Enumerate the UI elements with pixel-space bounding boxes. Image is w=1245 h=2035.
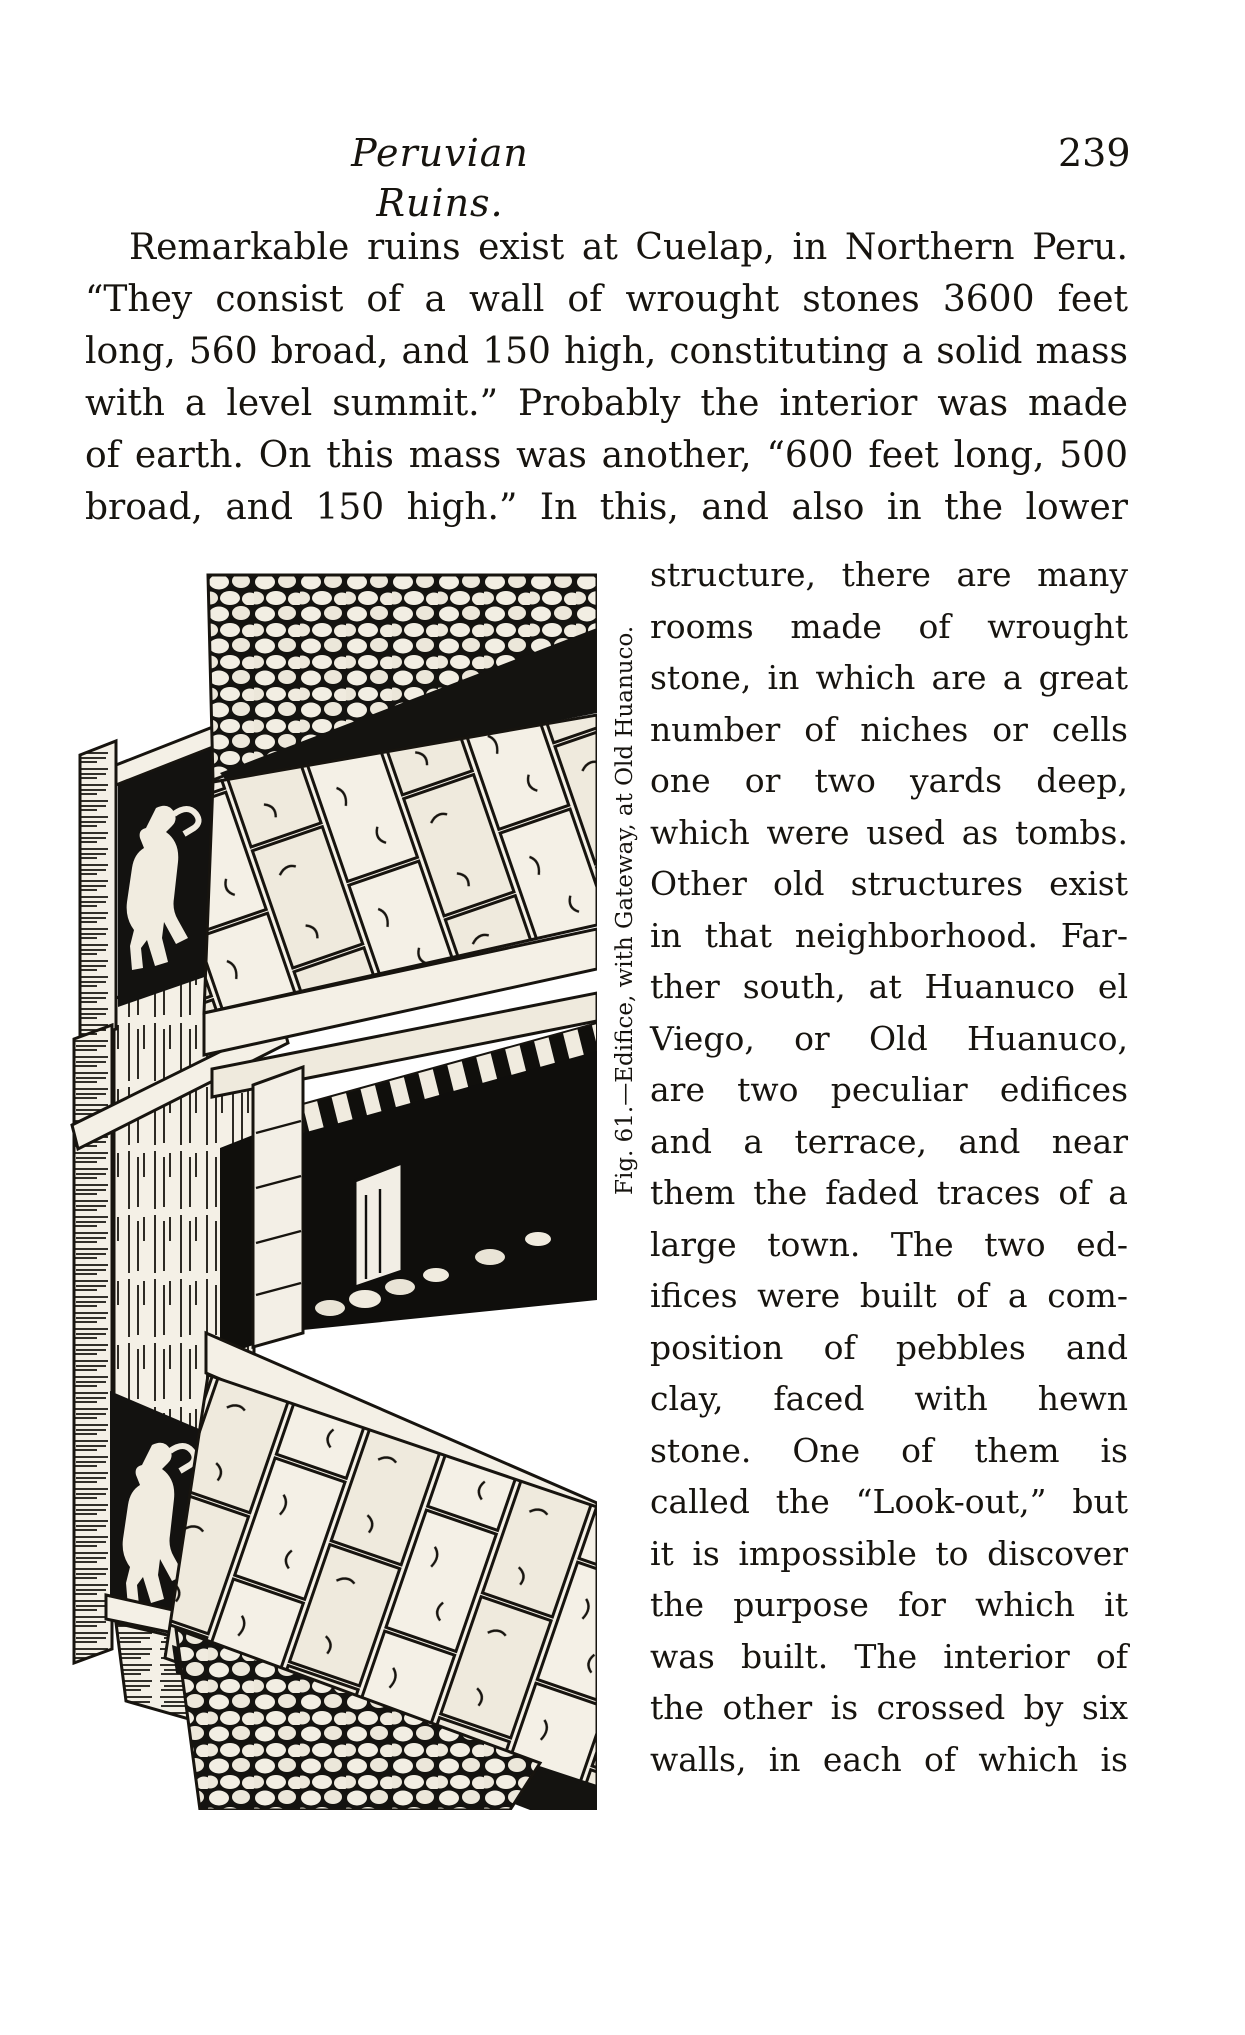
- text-line: clay, faced with hewn: [650, 1373, 1128, 1425]
- text-line: one or two yards deep,: [650, 755, 1128, 807]
- text-line: long, 560 broad, and 150 high, constitut…: [85, 326, 1128, 378]
- book-page: Peruvian Ruins. 239 Remarkable ruins exi…: [0, 0, 1245, 2035]
- text-line: walls, in each of which is: [650, 1734, 1128, 1786]
- text-line: it is impossible to discover: [650, 1528, 1128, 1580]
- text-line: Remarkable ruins exist at Cuelap, in Nor…: [85, 222, 1128, 274]
- text-line: broad, and 150 high.” In this, and also …: [85, 482, 1128, 534]
- text-line: Viego, or Old Huanuco,: [650, 1013, 1128, 1065]
- text-line: the purpose for which it: [650, 1579, 1128, 1631]
- figure-caption: Fig. 61.—Edifice, with Gateway, at Old H…: [608, 635, 642, 1195]
- text-line: was built. The interior of: [650, 1631, 1128, 1683]
- text-line: ifices were built of a com-: [650, 1270, 1128, 1322]
- page-number: 239: [1058, 128, 1131, 178]
- running-title: Peruvian Ruins.: [300, 128, 580, 228]
- figure-engraving: [70, 573, 597, 1810]
- text-line: of earth. On this mass was another, “600…: [85, 430, 1128, 482]
- text-line: ther south, at Huanuco el: [650, 961, 1128, 1013]
- text-line: the other is crossed by six: [650, 1682, 1128, 1734]
- text-line: in that neighborhood. Far-: [650, 910, 1128, 962]
- text-line: large town. The two ed-: [650, 1219, 1128, 1271]
- text-line: position of pebbles and: [650, 1322, 1128, 1374]
- text-line: number of niches or cells: [650, 704, 1128, 756]
- text-line: “They consist of a wall of wrought stone…: [85, 274, 1128, 326]
- text-line: stone. One of them is: [650, 1425, 1128, 1477]
- text-line: with a level summit.” Probably the inter…: [85, 378, 1128, 430]
- text-line: rooms made of wrought: [650, 601, 1128, 653]
- text-line: Other old structures exist: [650, 858, 1128, 910]
- text-line: stone, in which are a great: [650, 652, 1128, 704]
- text-line: them the faded traces of a: [650, 1167, 1128, 1219]
- text-line: and a terrace, and near: [650, 1116, 1128, 1168]
- text-line: structure, there are many: [650, 549, 1128, 601]
- text-line: which were used as tombs.: [650, 807, 1128, 859]
- opening-paragraph: Remarkable ruins exist at Cuelap, in Nor…: [85, 222, 1128, 534]
- text-line: are two peculiar edifices: [650, 1064, 1128, 1116]
- wrapped-column: structure, there are many rooms made of …: [650, 549, 1128, 1785]
- text-line: called the “Look-out,” but: [650, 1476, 1128, 1528]
